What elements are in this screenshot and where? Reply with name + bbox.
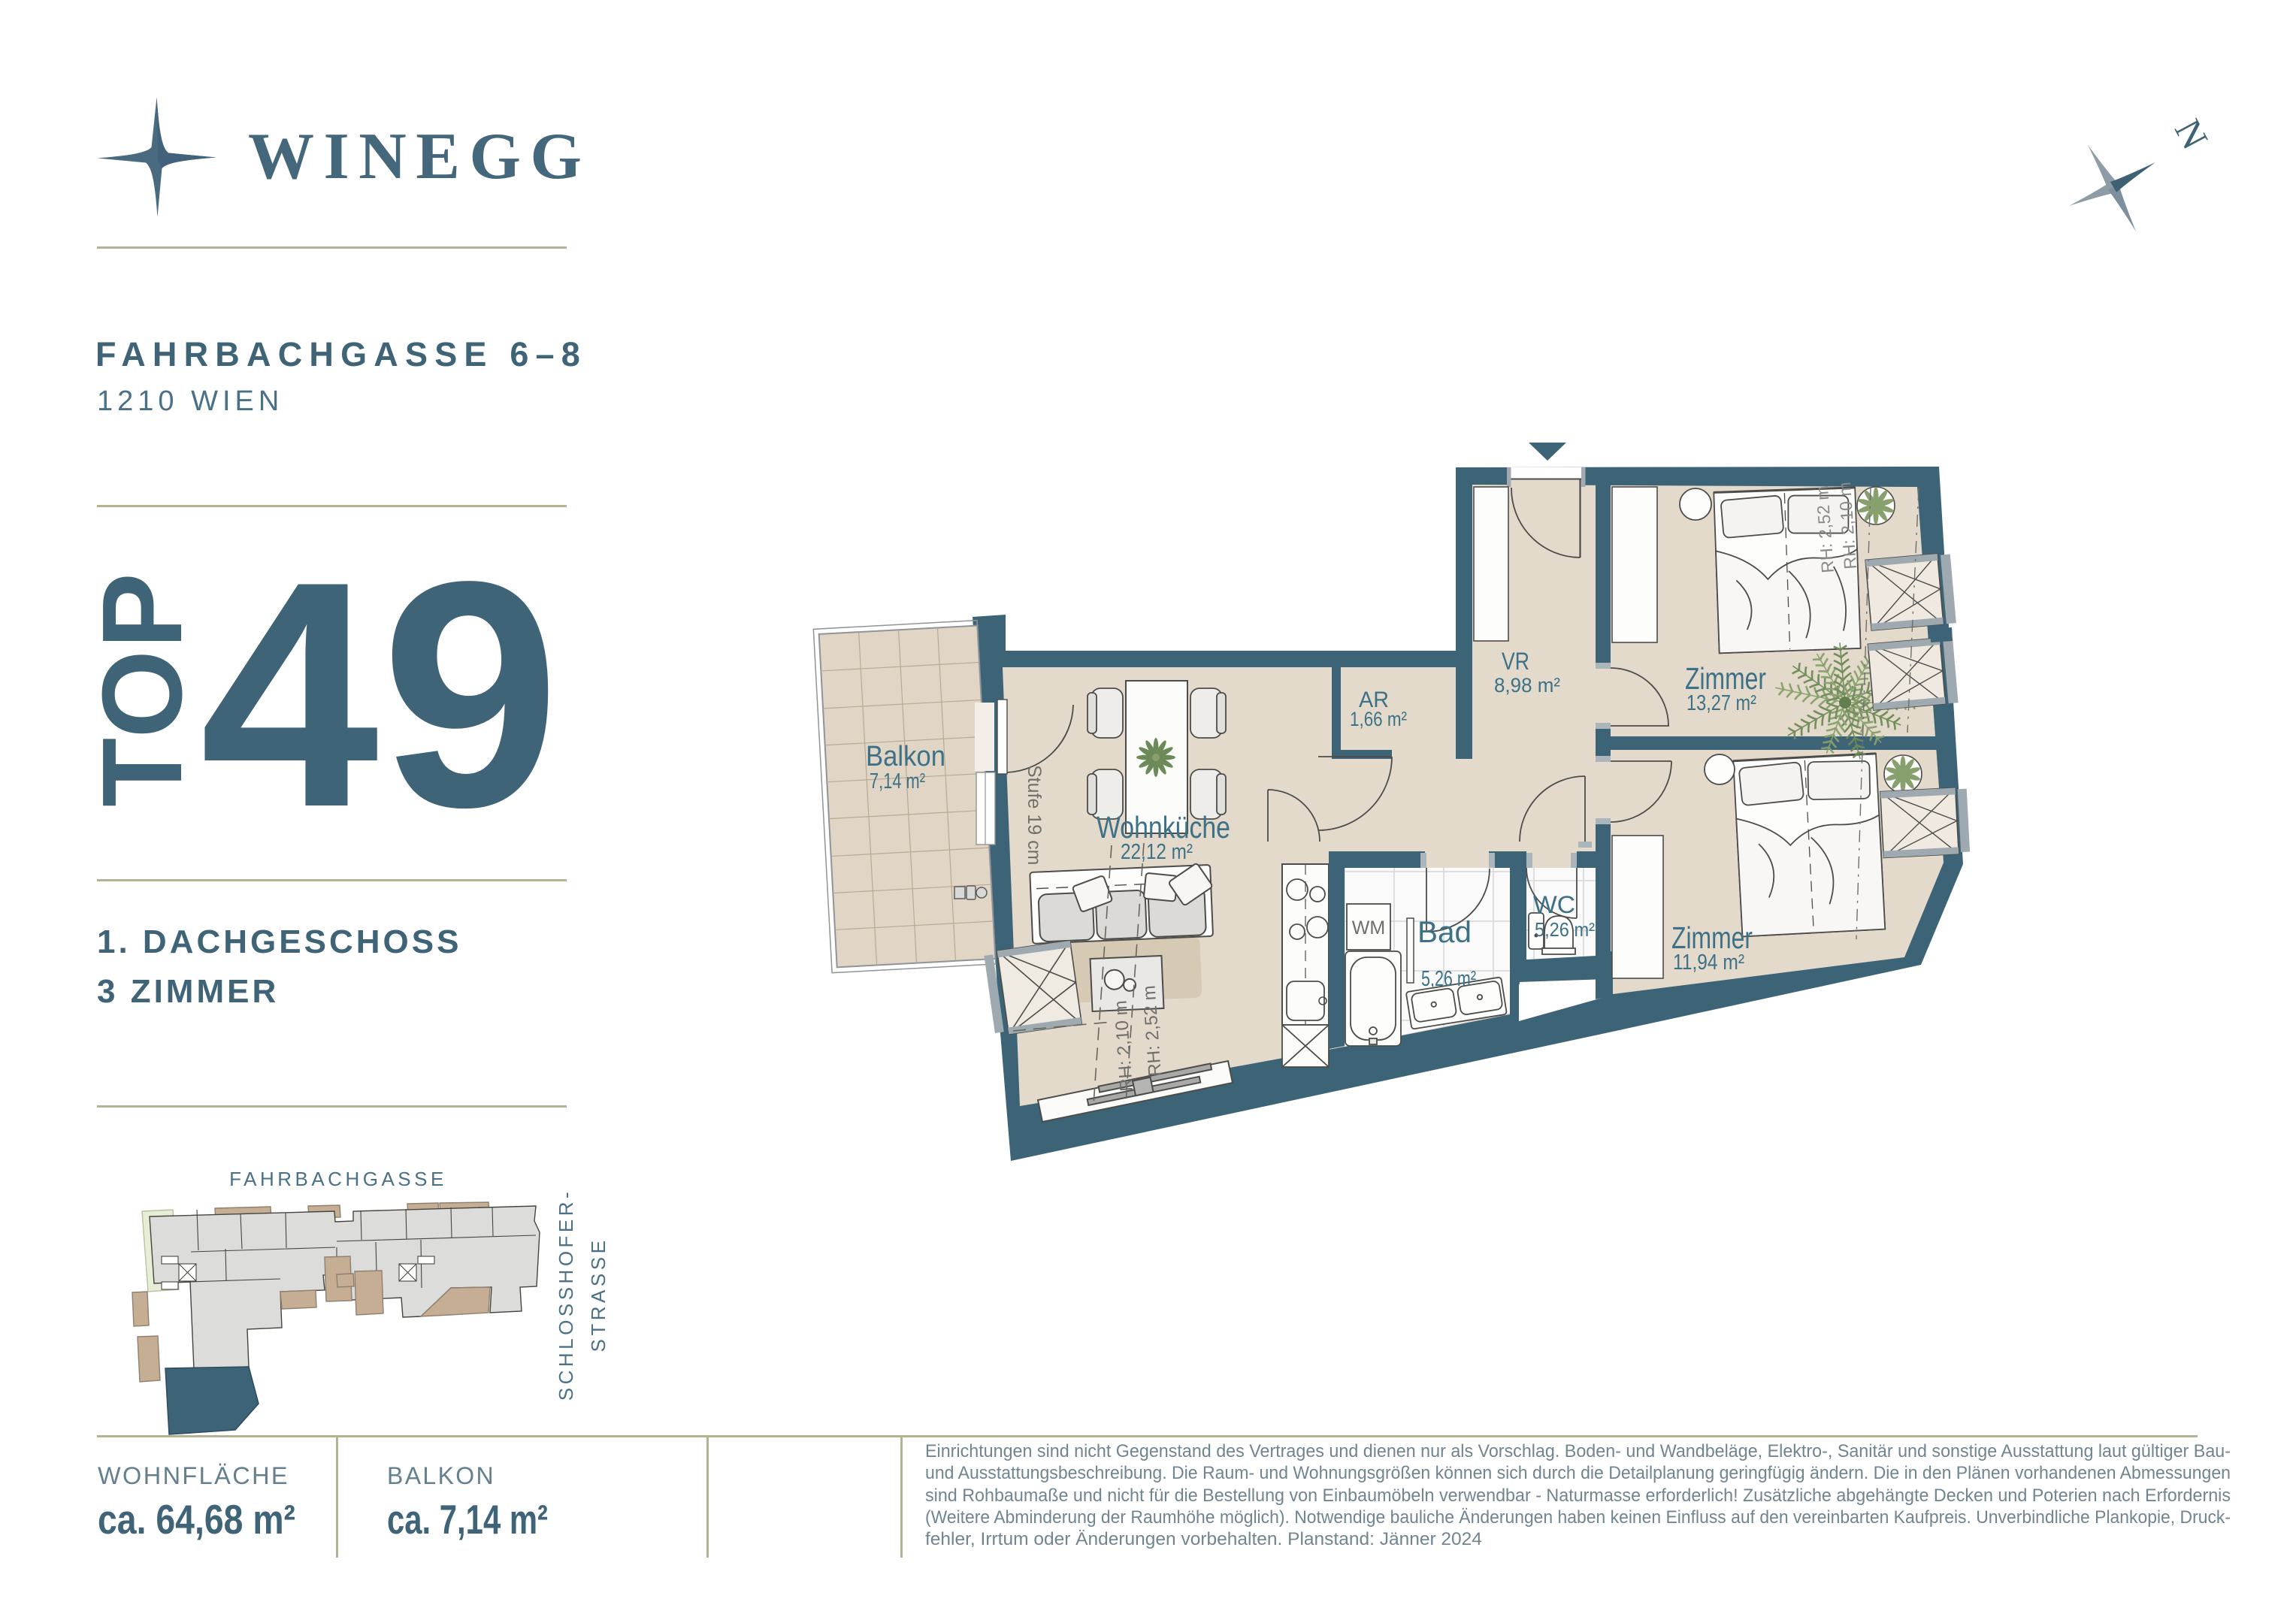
svg-text:WINEGG: WINEGG	[248, 120, 591, 193]
svg-text:N: N	[2167, 112, 2216, 156]
svg-text:WOHNFLÄCHE: WOHNFLÄCHE	[98, 1462, 289, 1489]
svg-text:WC: WC	[1533, 891, 1575, 918]
svg-text:FAHRBACHGASSE 6–8: FAHRBACHGASSE 6–8	[95, 335, 587, 373]
svg-text:49: 49	[200, 515, 562, 874]
svg-text:BALKON: BALKON	[387, 1462, 495, 1489]
svg-text:7,14 m²: 7,14 m²	[870, 769, 925, 793]
svg-text:22,12 m²: 22,12 m²	[1121, 840, 1193, 864]
svg-text:Einrichtungen sind nicht Gegen: Einrichtungen sind nicht Gegenstand des …	[925, 1441, 2231, 1461]
svg-text:11,94 m²: 11,94 m²	[1673, 951, 1744, 975]
svg-text:STRASSE: STRASSE	[587, 1238, 610, 1352]
svg-text:Bad: Bad	[1417, 916, 1472, 949]
svg-text:WM: WM	[1352, 917, 1385, 938]
svg-text:und Ausstattungsbeschreibung.: und Ausstattungsbeschreibung. Die Raum- …	[925, 1463, 2231, 1483]
svg-text:5,26 m²: 5,26 m²	[1535, 918, 1595, 941]
svg-text:VR: VR	[1502, 648, 1529, 675]
svg-text:SCHLOSSHOFER-: SCHLOSSHOFER-	[555, 1189, 577, 1401]
svg-text:Stufe 19 cm: Stufe 19 cm	[1024, 765, 1045, 865]
svg-text:ca. 7,14 m²: ca. 7,14 m²	[387, 1496, 548, 1543]
svg-text:1210 WIEN: 1210 WIEN	[97, 385, 283, 417]
svg-text:Balkon: Balkon	[866, 741, 945, 772]
svg-text:TOP: TOP	[78, 571, 205, 807]
svg-text:3 ZIMMER: 3 ZIMMER	[97, 973, 279, 1010]
svg-text:FAHRBACHGASSE: FAHRBACHGASSE	[229, 1168, 447, 1190]
svg-text:sind Rohbaumaße und nicht für: sind Rohbaumaße und nicht für die Bestel…	[925, 1485, 2231, 1506]
svg-text:8,98 m²: 8,98 m²	[1494, 674, 1560, 697]
svg-text:1. DACHGESCHOSS: 1. DACHGESCHOSS	[97, 923, 461, 960]
svg-text:1,66 m²: 1,66 m²	[1350, 708, 1407, 730]
svg-text:5,26 m²: 5,26 m²	[1421, 967, 1476, 991]
svg-text:13,27 m²: 13,27 m²	[1686, 691, 1756, 715]
svg-text:(Weitere Abminderung der Raumh: (Weitere Abminderung der Raumhöhe möglic…	[925, 1507, 2231, 1528]
svg-text:ca. 64,68 m²: ca. 64,68 m²	[98, 1496, 295, 1543]
svg-text:fehler, Irrtum oder Änderungen: fehler, Irrtum oder Änderungen vorbehalt…	[925, 1529, 1482, 1549]
